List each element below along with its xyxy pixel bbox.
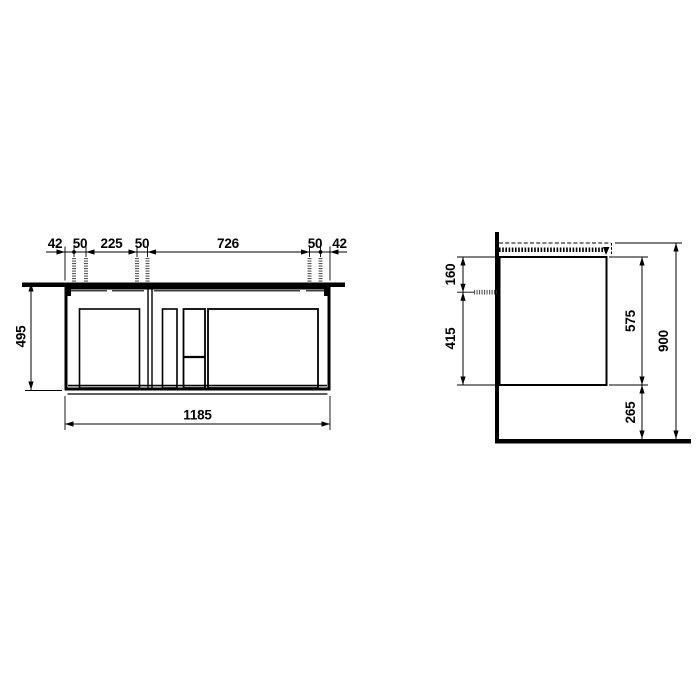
dimension-top-chain: 42 50 225 50 726 50 42 [46, 236, 347, 281]
dim-label-50-b: 50 [135, 236, 150, 251]
countertop-corner-mark [603, 247, 610, 255]
cabinet-side-outline [500, 257, 607, 385]
wall-line [495, 232, 499, 443]
front-view: 42 50 225 50 726 50 42 495 1185 [14, 236, 348, 430]
countertop-dashed-profile [499, 243, 612, 255]
siphon-recess [184, 309, 206, 388]
left-drawer-front [80, 309, 140, 388]
dim-label-415: 415 [443, 327, 458, 350]
dimension-left-stack: 160 415 [443, 257, 497, 385]
extension-lines [609, 243, 682, 385]
floor-line [495, 439, 691, 444]
dim-label-42-right: 42 [332, 236, 347, 251]
centre-divider [148, 288, 152, 389]
left-hanger-block [65, 287, 72, 297]
dim-label-160: 160 [443, 264, 458, 286]
dimension-width-1185: 1185 [65, 396, 330, 430]
vanity-dimension-drawing: 42 50 225 50 726 50 42 495 1185 [0, 0, 700, 700]
dim-label-495: 495 [14, 325, 29, 348]
dim-label-575: 575 [623, 309, 638, 332]
fixing-screws [74, 258, 321, 282]
dim-label-265: 265 [623, 401, 638, 424]
right-drawer-front [208, 309, 318, 388]
countertop-front [22, 283, 345, 288]
cabinet-front-outline [65, 287, 331, 395]
dimension-height-495: 495 [14, 283, 63, 391]
side-view: 160 415 575 265 [443, 232, 691, 444]
dim-label-1185: 1185 [183, 408, 212, 423]
dim-label-50-c: 50 [308, 236, 323, 251]
dim-label-225: 225 [101, 236, 124, 251]
dimension-right-stack: 575 265 900 [609, 243, 682, 439]
dim-label-42-left: 42 [48, 236, 63, 251]
narrow-recess [163, 309, 178, 388]
interior-fronts [80, 309, 319, 388]
dim-label-726: 726 [217, 236, 240, 251]
cabinet-box [66, 288, 329, 389]
dim-label-900: 900 [656, 330, 671, 352]
technical-drawing-page: 42 50 225 50 726 50 42 495 1185 [0, 0, 700, 700]
dim-label-50-a: 50 [73, 236, 88, 251]
